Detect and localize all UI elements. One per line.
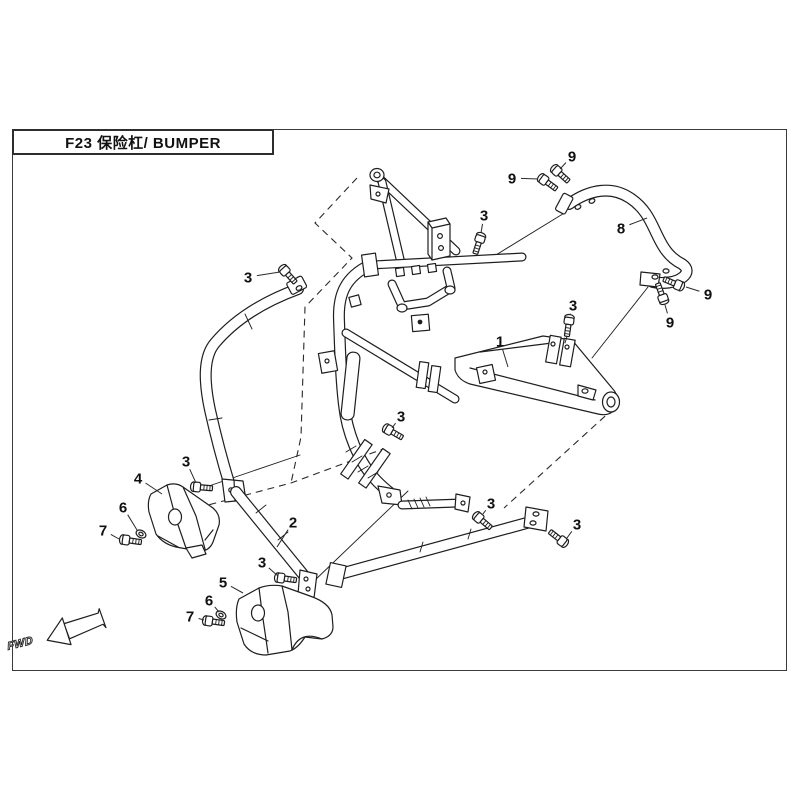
rail-tab	[427, 263, 436, 272]
block-hole	[438, 234, 443, 239]
callout-1: 1	[496, 334, 504, 351]
cover5-hole	[252, 605, 265, 621]
fwd-arrow-body	[62, 608, 106, 639]
callout-7: 7	[186, 609, 194, 626]
bolt-icon	[547, 528, 570, 549]
callout-3-leader	[190, 469, 196, 483]
bumper-upright-tube-fill	[206, 289, 298, 486]
callout-5: 5	[219, 575, 227, 592]
callout-9: 9	[568, 149, 576, 166]
callout-5-leader	[231, 586, 243, 593]
bolt-icon	[562, 314, 575, 337]
callout-3: 3	[397, 409, 405, 426]
callout-3: 3	[573, 517, 581, 534]
bracket-hole	[304, 577, 308, 581]
bracket-hole	[325, 359, 329, 363]
lower-right-end-bracket	[524, 507, 548, 531]
page-title: F23 保险杠/ BUMPER	[65, 132, 221, 153]
callout-3-leader	[567, 531, 572, 538]
callout-3-leader	[257, 272, 280, 276]
callout-8: 8	[617, 221, 625, 238]
frame-top-cap-hole	[374, 172, 380, 178]
projection-line-grab-bar	[491, 212, 566, 258]
bracket-hole	[376, 192, 380, 196]
callout-4: 4	[134, 471, 143, 488]
front-bumper-part2	[206, 275, 548, 598]
rail-end-bracket	[362, 253, 379, 277]
callout-6: 6	[119, 500, 127, 517]
grab-bar-tube-outline	[569, 191, 687, 283]
bracket-hole	[483, 370, 487, 374]
callout-3-leader	[481, 224, 483, 233]
lower-block-hole	[418, 320, 423, 325]
callout-9-leader	[665, 305, 667, 313]
bolt-icon	[471, 510, 494, 531]
callout-3: 3	[569, 298, 577, 315]
rail-tab	[411, 265, 420, 274]
callout-9-leader	[560, 163, 566, 169]
dashed-reference-line-right	[504, 408, 614, 508]
callout-7: 7	[99, 523, 107, 540]
cover-part5	[236, 585, 333, 655]
fwd-label: FWD	[7, 635, 34, 653]
callout-9: 9	[704, 287, 712, 304]
callout-7-leader	[111, 534, 119, 539]
callout-3-leader	[483, 510, 486, 514]
callout-9: 9	[666, 315, 674, 332]
rear-grab-bar-part8	[555, 191, 687, 287]
callout-2: 2	[289, 515, 297, 532]
block-hole	[439, 246, 444, 251]
callout-3-leader	[269, 568, 278, 576]
bolt-icon	[549, 163, 572, 185]
bumper-lower-right-tube-fill	[340, 521, 534, 574]
frame-rail-fill	[372, 257, 522, 265]
main-frame-part1	[318, 169, 619, 513]
projection-line-cover4	[200, 455, 300, 489]
callout-3: 3	[182, 454, 190, 471]
callout-3: 3	[480, 208, 488, 225]
bolt-icon	[471, 231, 487, 255]
projection-line-grab-bar-2	[592, 287, 648, 358]
bracket-hole	[582, 389, 588, 393]
callout-6-leader	[128, 515, 137, 530]
cover-part4	[148, 484, 219, 558]
bumper-lower-left-tube-fill	[236, 492, 306, 578]
bumper-exploded-diagram: FWD 399839931334672333567	[0, 0, 800, 800]
cover4-lip	[186, 545, 206, 558]
mount-hole	[652, 275, 658, 279]
frame-foot-tube-fill	[402, 503, 460, 505]
bracket-hole	[306, 587, 310, 591]
bolt-icon	[190, 482, 213, 493]
fwd-arrow: FWD	[3, 608, 108, 660]
bracket-hole	[530, 521, 536, 525]
bracket-hole	[551, 342, 555, 346]
callout-9: 9	[508, 171, 516, 188]
bracket-hole	[565, 345, 569, 349]
arch-foot	[397, 304, 407, 312]
bolt-icon	[274, 572, 297, 585]
rail-tab	[395, 267, 404, 276]
bracket-hole	[533, 512, 539, 516]
callout-3: 3	[487, 496, 495, 513]
bracket-hole	[387, 493, 391, 497]
grab-bar-tube-fill	[569, 191, 687, 283]
callout-9-leader	[686, 287, 699, 291]
callout-6: 6	[205, 593, 213, 610]
cover4-hole	[169, 509, 182, 525]
arch-foot	[445, 286, 455, 294]
arm-end-cap-hole	[607, 397, 615, 407]
title-box: F23 保险杠/ BUMPER	[12, 129, 274, 155]
callout-9-leader	[521, 178, 538, 179]
mount-hole	[663, 269, 669, 273]
page: FWD 399839931334672333567 F23 保险杠/ BUMPE…	[0, 0, 800, 800]
grab-bar-end-cap-left	[555, 193, 574, 215]
washer-icon	[215, 609, 228, 620]
callout-3: 3	[258, 555, 266, 572]
bracket-hole	[461, 501, 465, 505]
callout-3: 3	[244, 270, 252, 287]
rail-tab	[349, 295, 361, 307]
